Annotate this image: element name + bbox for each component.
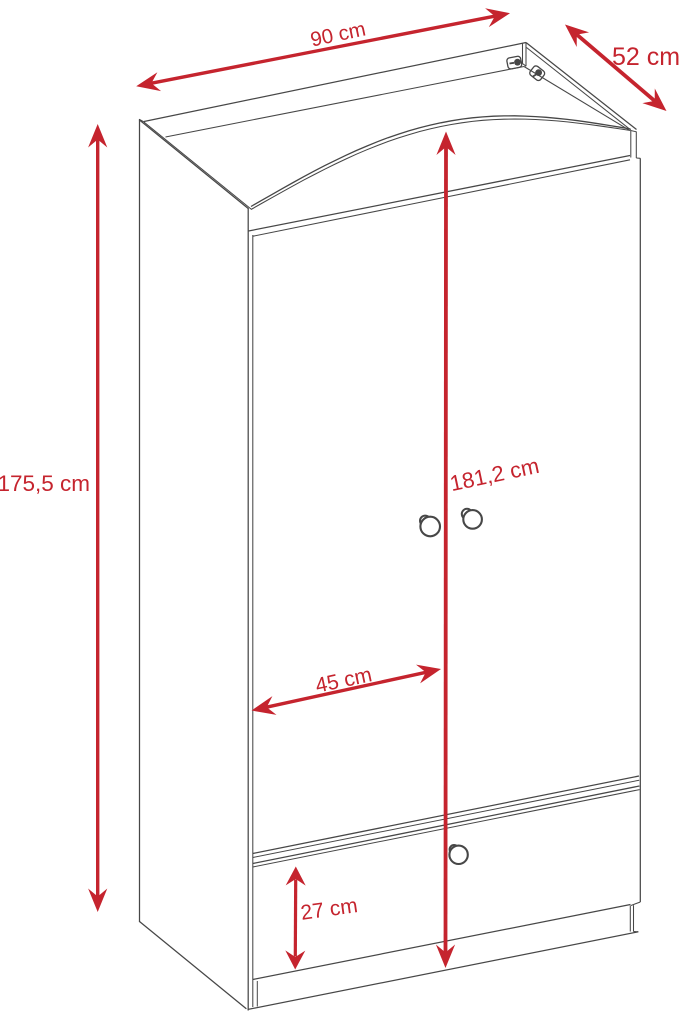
svg-text:27 cm: 27 cm — [299, 894, 359, 925]
svg-text:52 cm: 52 cm — [612, 43, 680, 71]
svg-text:181,2 cm: 181,2 cm — [448, 453, 542, 496]
svg-text:45 cm: 45 cm — [313, 663, 374, 697]
svg-text:175,5 cm: 175,5 cm — [0, 471, 90, 496]
